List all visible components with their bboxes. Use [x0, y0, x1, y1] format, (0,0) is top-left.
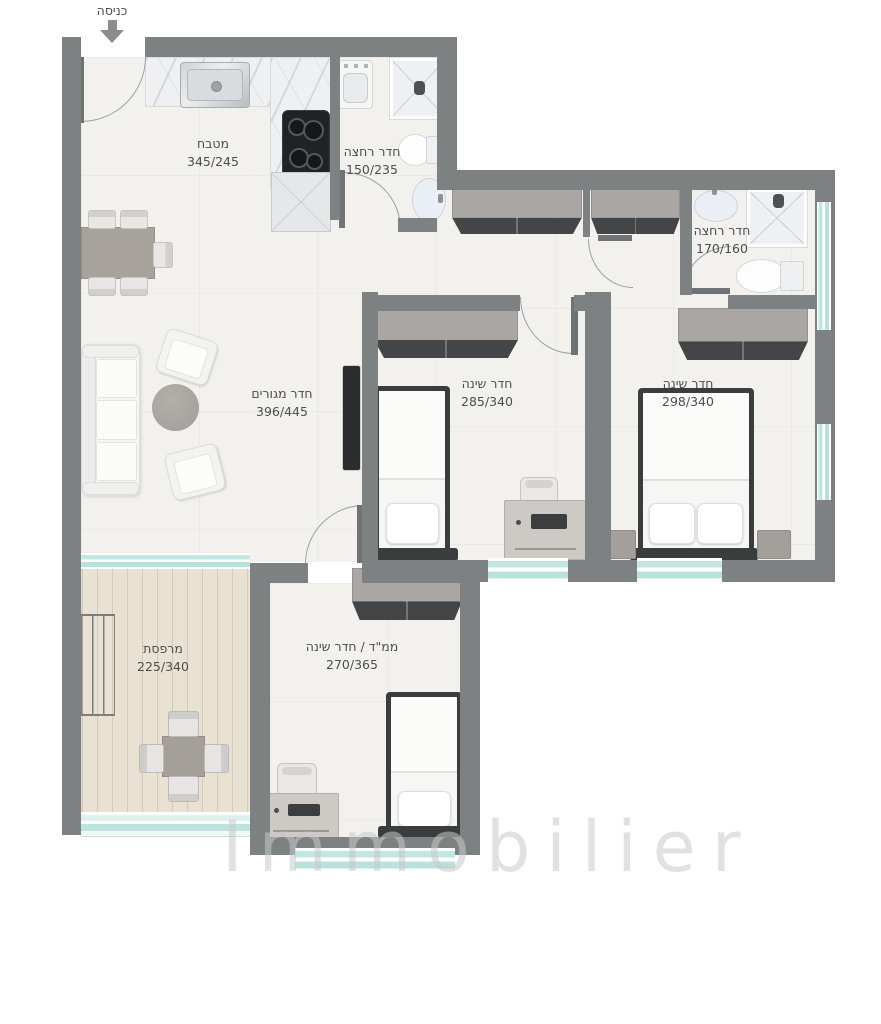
- bath1-label: חדר רחצה 150/235: [322, 143, 422, 179]
- bath2-name: חדר רחצה: [694, 222, 751, 240]
- dining-chair: [88, 210, 116, 229]
- kitchen-label: מטבח 345/245: [158, 135, 268, 171]
- balcony-table: [162, 736, 205, 777]
- wall-kitchen-bath-divider: [330, 37, 340, 220]
- sink-2: [694, 190, 738, 222]
- entrance-arrow-icon: [100, 30, 124, 43]
- window-bath2-right: [817, 202, 831, 330]
- refrigerator: [271, 172, 331, 232]
- wall-bedrooms-divider: [585, 292, 611, 560]
- balcony-chair: [204, 744, 229, 773]
- balcony-chair: [168, 776, 199, 802]
- corridor-door-leaf: [598, 235, 632, 241]
- bath1-dims: 150/235: [346, 161, 398, 179]
- bedroom1-desk: [504, 500, 587, 560]
- balcony-label: מרפסת 225/340: [108, 640, 218, 676]
- bath2-dims: 170/160: [696, 240, 748, 258]
- sofa: [81, 344, 140, 496]
- sofa-cushions: [96, 359, 137, 481]
- shower-head-icon: [773, 194, 784, 208]
- wall-top: [145, 37, 457, 57]
- balcony-chair: [168, 711, 199, 737]
- floor-plan: כניסה מטבח 345/245 חדר רחצה 150/235 חדר …: [0, 0, 881, 1024]
- bath2-label: חדר רחצה 170/160: [672, 222, 772, 258]
- entrance-text: כניסה: [97, 2, 128, 20]
- balcony-chair: [139, 744, 164, 773]
- faucet-icon: [438, 194, 443, 203]
- sink-drain: [211, 81, 222, 92]
- dining-chair: [120, 277, 148, 296]
- wall-bedrooms-divider-stub: [583, 190, 590, 237]
- wall-bath2-bottom: [728, 295, 815, 309]
- dining-chair: [88, 277, 116, 296]
- toilet-2: [736, 259, 804, 293]
- bedroom1-label: חדר שינה 285/340: [432, 375, 542, 411]
- hall-closet-left: [452, 188, 582, 234]
- wall-bedroom1-door-jamb: [574, 295, 585, 311]
- coffee-table: [152, 384, 199, 431]
- kitchen-sink: [180, 62, 250, 108]
- saferoom-label: ממ"ד / חדר שינה 270/365: [282, 638, 422, 674]
- shower-head-icon: [414, 81, 425, 95]
- balcony-dims: 225/340: [137, 658, 189, 676]
- saferoom-dims: 270/365: [326, 656, 378, 674]
- saferoom-chair: [277, 763, 317, 797]
- entrance-label: כניסה: [82, 2, 142, 20]
- sofa-back: [82, 345, 96, 495]
- kitchen-name: מטבח: [197, 135, 229, 153]
- balcony-name: מרפסת: [143, 640, 183, 658]
- wall-bath1-bottom: [398, 218, 437, 232]
- bedroom1-name: חדר שינה: [462, 375, 513, 393]
- bedroom1-dims: 285/340: [461, 393, 513, 411]
- dining-chair: [153, 242, 173, 268]
- window-bedroom2-right: [817, 424, 831, 500]
- window-bedroom1-bottom: [488, 558, 568, 582]
- bedroom1-wardrobe: [374, 308, 518, 358]
- bedroom2-name: חדר שינה: [663, 375, 714, 393]
- wall-exterior-left: [62, 37, 81, 835]
- wall-upper-right: [437, 37, 457, 190]
- dining-table: [81, 227, 155, 279]
- dining-chair: [120, 210, 148, 229]
- watermark: Immobilier: [222, 806, 756, 888]
- bedroom2-wardrobe: [678, 308, 808, 360]
- window-bedroom2-bottom: [637, 558, 722, 582]
- sofa-armrest: [82, 345, 139, 358]
- bath1-name: חדר רחצה: [344, 143, 401, 161]
- bedroom2-bed: [638, 388, 754, 554]
- wall-living-bedroom1-divider: [362, 292, 378, 560]
- living-dims: 396/445: [256, 403, 308, 421]
- living-label: חדר מגורים 396/445: [227, 385, 337, 421]
- living-name: חדר מגורים: [251, 385, 312, 403]
- window-balcony-slider: [81, 553, 250, 569]
- wall-top-right-wing: [440, 170, 835, 190]
- kitchen-dims: 345/245: [187, 153, 239, 171]
- washing-machine: [338, 60, 373, 109]
- nightstand-right: [757, 530, 791, 559]
- bedroom2-label: חדר שינה 298/340: [633, 375, 743, 411]
- bedroom2-dims: 298/340: [662, 393, 714, 411]
- sofa-armrest: [82, 482, 139, 495]
- saferoom-name: ממ"ד / חדר שינה: [306, 638, 399, 656]
- hall-closet-right: [591, 188, 680, 234]
- wall-bedroom1-top: [362, 295, 520, 311]
- tv: [343, 366, 360, 470]
